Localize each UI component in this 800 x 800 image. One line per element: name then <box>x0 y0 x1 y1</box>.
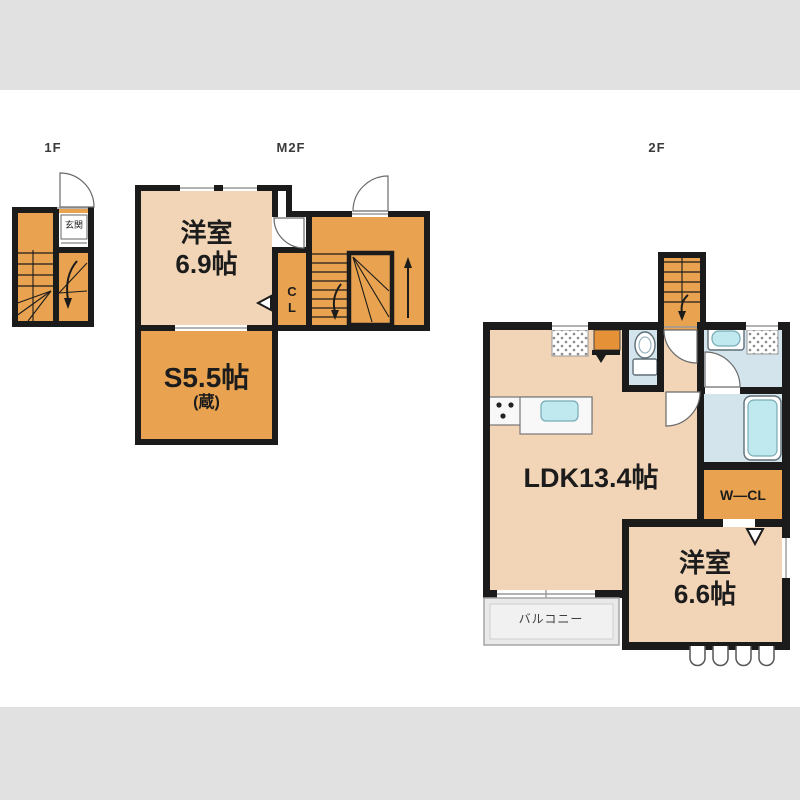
closet-letter-c: C <box>281 284 303 300</box>
floor-label-2f: 2F <box>632 140 682 155</box>
f2-room-size: 6.6帖 <box>629 579 781 610</box>
m2f-storage-sub: (蔵) <box>141 394 272 413</box>
ldk-label: LDK13.4帖 <box>488 463 694 495</box>
balcony-label: バルコニー <box>492 612 610 626</box>
washer-space-hatch <box>552 330 588 356</box>
m2f-hall-door-arc <box>353 176 388 211</box>
bathtub-icon <box>744 396 781 460</box>
stairs-2f-icon <box>658 252 706 330</box>
refrigerator-space <box>594 330 620 350</box>
f2-room-label: 洋室 6.6帖 <box>629 548 781 609</box>
washbasin-icon <box>708 327 744 350</box>
m2f-room-name: 洋室 <box>141 218 272 249</box>
m2f-storage-label: S5.5帖 (蔵) <box>141 361 272 413</box>
stove-icon <box>496 402 501 407</box>
m2f-room-size: 6.9帖 <box>141 249 272 280</box>
entrance-door-arc <box>60 173 94 207</box>
closet-letter-l: L <box>281 300 303 316</box>
floorplan-1f <box>12 173 94 327</box>
f2-room-name: 洋室 <box>629 548 781 579</box>
toilet-icon <box>633 332 657 375</box>
kitchen-sink-icon <box>541 401 578 421</box>
floor-label-m2f: M2F <box>261 140 321 155</box>
m2f-storage-name: S5.5帖 <box>141 361 272 394</box>
floorplan-canvas <box>0 0 800 800</box>
washroom-hatch <box>747 330 778 354</box>
genkan-label: 玄関 <box>60 221 88 230</box>
m2f-closet-label: C L <box>281 284 303 317</box>
floor-label-1f: 1F <box>28 140 78 155</box>
m2f-room-label: 洋室 6.9帖 <box>141 218 272 279</box>
wcl-label: W—CL <box>704 487 782 504</box>
